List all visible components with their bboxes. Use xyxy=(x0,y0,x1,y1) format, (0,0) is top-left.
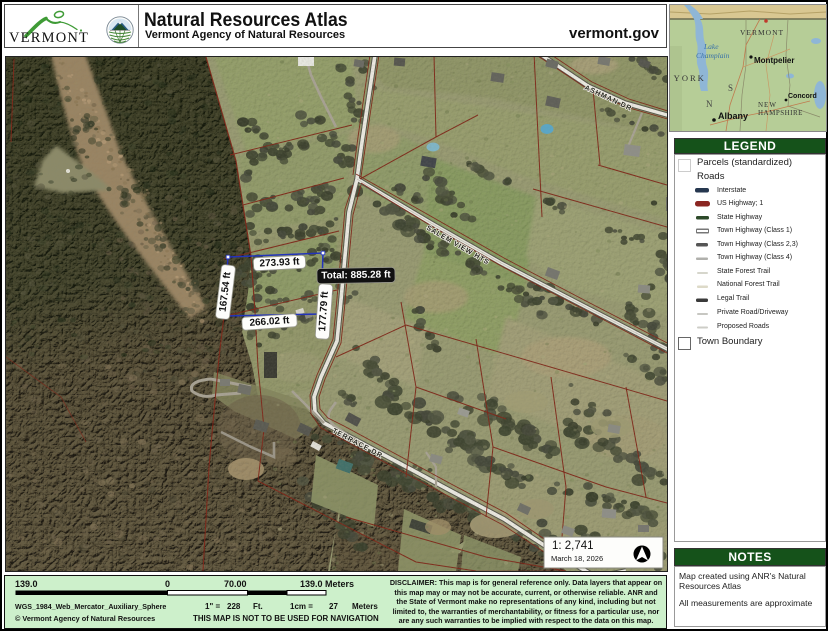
svg-text:S: S xyxy=(728,83,733,93)
svg-text:NEW: NEW xyxy=(758,101,777,109)
svg-text:1: 2,741: 1: 2,741 xyxy=(552,540,594,552)
svg-text:Champlain: Champlain xyxy=(696,51,730,60)
svg-text:Concord: Concord xyxy=(788,93,817,100)
svg-text:March 18, 2026: March 18, 2026 xyxy=(551,554,603,563)
svg-text:HAMPSHIRE: HAMPSHIRE xyxy=(758,109,803,117)
svg-text:N: N xyxy=(706,99,713,109)
svg-text:Montpelier: Montpelier xyxy=(754,56,794,65)
svg-text:273.93 ft: 273.93 ft xyxy=(259,256,300,269)
svg-text:Lake: Lake xyxy=(703,42,719,51)
svg-text:Total: 885.28 ft: Total: 885.28 ft xyxy=(321,269,391,281)
svg-text:VERMONT: VERMONT xyxy=(740,28,784,37)
svg-text:W YORK: W YORK xyxy=(670,73,706,83)
svg-text:Albany: Albany xyxy=(718,111,748,121)
